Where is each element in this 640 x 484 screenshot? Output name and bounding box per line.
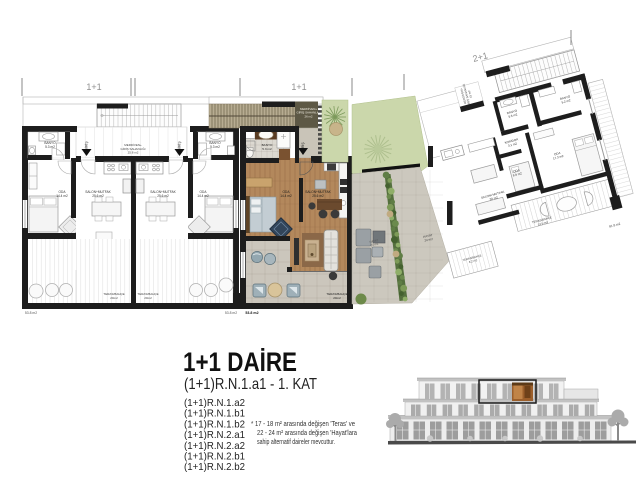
- svg-text:sahip alternatif daireler mevc: sahip alternatif daireler mevcuttur.: [257, 437, 335, 446]
- svg-text:53.8 m2: 53.8 m2: [25, 311, 37, 315]
- svg-text:20m2: 20m2: [333, 296, 341, 300]
- svg-text:1+1: 1+1: [291, 82, 306, 92]
- svg-text:ODA: ODA: [283, 190, 291, 194]
- svg-text:SALON+MUTFAK: SALON+MUTFAK: [85, 190, 111, 194]
- svg-text:1+1 DAİRE: 1+1 DAİRE: [183, 347, 297, 377]
- svg-text:ODA: ODA: [59, 190, 67, 194]
- svg-text:BANYO: BANYO: [209, 141, 221, 145]
- svg-text:26 m2: 26 m2: [304, 114, 312, 118]
- svg-text:25.6 m2: 25.6 m2: [92, 194, 104, 198]
- svg-text:20m2: 20m2: [144, 296, 152, 300]
- svg-text:53.8 m2: 53.8 m2: [245, 311, 258, 315]
- svg-text:25.6 m2: 25.6 m2: [157, 194, 169, 198]
- svg-text:5.3 m2: 5.3 m2: [262, 147, 272, 151]
- svg-text:20m2: 20m2: [110, 296, 118, 300]
- svg-text:ODA: ODA: [200, 190, 208, 194]
- svg-text:MERDİVEN+: MERDİVEN+: [124, 142, 142, 147]
- svg-text:GİRİŞ SAHANLIĞI: GİRİŞ SAHANLIĞI: [120, 146, 145, 151]
- svg-text:TERAS/BAHÇE: TERAS/BAHÇE: [326, 292, 347, 296]
- svg-text:BANYO: BANYO: [44, 141, 56, 145]
- svg-text:MERDİVEN+: MERDİVEN+: [300, 106, 317, 111]
- svg-text:5.3 m2: 5.3 m2: [45, 145, 55, 149]
- svg-text:SALON+MUTFAK: SALON+MUTFAK: [150, 190, 176, 194]
- svg-text:TERAS/BAHÇE: TERAS/BAHÇE: [103, 292, 124, 296]
- svg-text:GİRİŞ SAHANLIĞI: GİRİŞ SAHANLIĞI: [296, 110, 320, 115]
- svg-text:BANYO: BANYO: [262, 143, 273, 147]
- svg-text:25.8 m2: 25.8 m2: [128, 151, 139, 155]
- svg-text:(1+1)R.N.2.b2: (1+1)R.N.2.b2: [184, 461, 245, 473]
- svg-text:TERAS/BAHÇE: TERAS/BAHÇE: [137, 292, 158, 296]
- svg-text:22 - 24 m² arasında değişen 'H: 22 - 24 m² arasında değişen 'Hayat'lara: [257, 428, 357, 437]
- svg-text:1+1: 1+1: [86, 82, 101, 92]
- svg-text:53.8 m2: 53.8 m2: [225, 311, 237, 315]
- svg-text:25.6 m2: 25.6 m2: [312, 194, 324, 198]
- svg-text:SALON+MUTFAK: SALON+MUTFAK: [305, 190, 331, 194]
- svg-text:* 17 - 18 m² arasında değişen: * 17 - 18 m² arasında değişen 'Teras' ve: [251, 419, 355, 428]
- svg-text:(1+1)R.N.1.a1 - 1. KAT: (1+1)R.N.1.a1 - 1. KAT: [184, 376, 317, 393]
- svg-text:14.4 m2: 14.4 m2: [197, 194, 209, 198]
- svg-text:14.4 m2: 14.4 m2: [56, 194, 68, 198]
- svg-text:5.3 m2: 5.3 m2: [210, 145, 220, 149]
- svg-text:14.4 m2: 14.4 m2: [280, 194, 292, 198]
